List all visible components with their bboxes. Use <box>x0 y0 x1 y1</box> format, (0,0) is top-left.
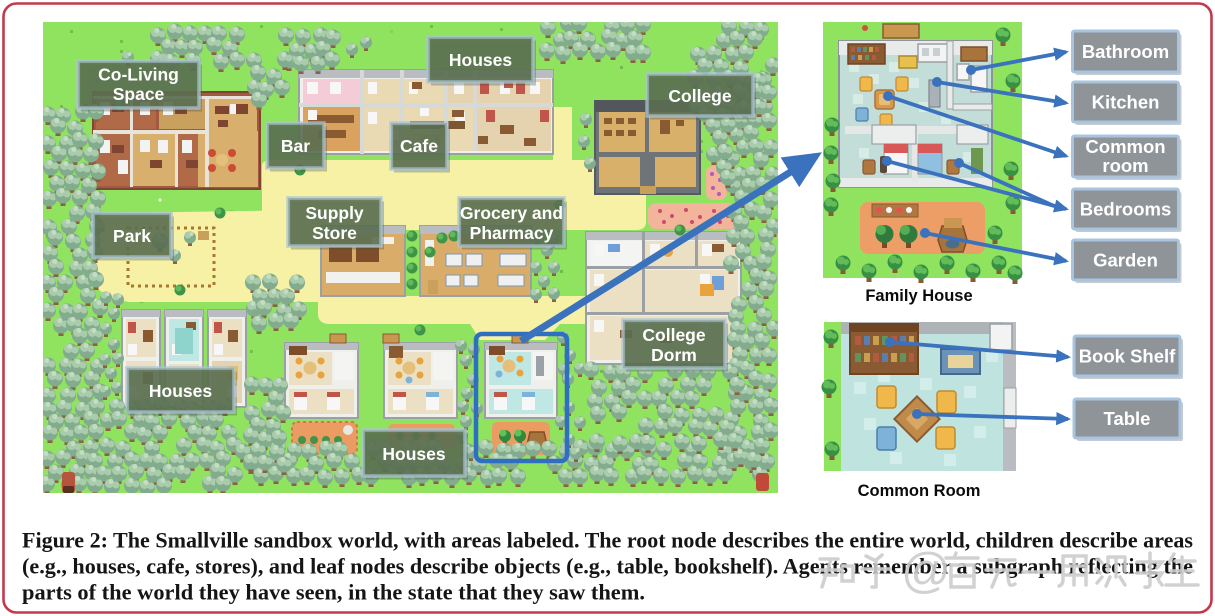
svg-text:Co-Living: Co-Living <box>98 65 179 85</box>
svg-text:Houses: Houses <box>382 444 445 464</box>
svg-text:Pharmacy: Pharmacy <box>470 223 554 243</box>
svg-text:Garden: Garden <box>1093 250 1158 271</box>
svg-text:Common Room: Common Room <box>858 482 981 500</box>
svg-text:Supply: Supply <box>305 203 364 223</box>
svg-text:Bathroom: Bathroom <box>1082 41 1169 62</box>
svg-text:College: College <box>642 325 705 345</box>
svg-text:College: College <box>668 86 731 106</box>
svg-text:Space: Space <box>113 84 165 104</box>
svg-text:Bar: Bar <box>281 136 310 156</box>
svg-text:Dorm: Dorm <box>651 345 697 365</box>
svg-text:room: room <box>1102 155 1148 176</box>
svg-text:Grocery and: Grocery and <box>460 203 563 223</box>
svg-text:Houses: Houses <box>149 381 212 401</box>
svg-text:Cafe: Cafe <box>400 136 438 156</box>
svg-text:Store: Store <box>312 223 357 243</box>
svg-text:parts of the world they have s: parts of the world they have seen, in th… <box>22 580 645 605</box>
svg-text:Book Shelf: Book Shelf <box>1079 346 1176 367</box>
svg-text:Houses: Houses <box>449 50 512 70</box>
svg-text:Table: Table <box>1104 408 1151 429</box>
svg-text:@: @ <box>901 544 951 598</box>
svg-text:Figure 2: The Smallville sandb: Figure 2: The Smallville sandbox world, … <box>22 528 1193 553</box>
svg-text:Family House: Family House <box>865 287 972 305</box>
svg-text:(e.g., houses, cafe, stores),: (e.g., houses, cafe, stores), and leaf n… <box>22 554 1193 579</box>
svg-text:Kitchen: Kitchen <box>1092 92 1160 113</box>
svg-text:Common: Common <box>1085 136 1165 157</box>
svg-text:Bedrooms: Bedrooms <box>1080 199 1172 220</box>
svg-text:Park: Park <box>113 226 151 246</box>
